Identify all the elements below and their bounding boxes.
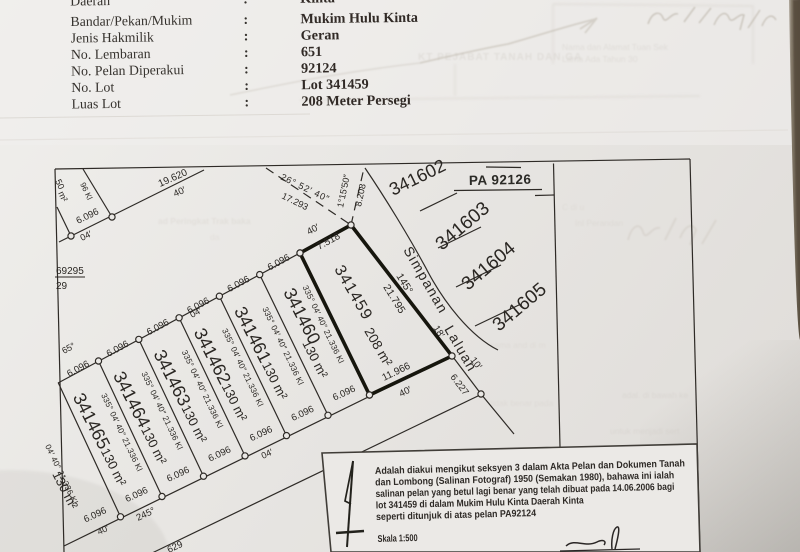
svg-text:Lama Ada Tahun 30: Lama Ada Tahun 30: [562, 54, 638, 64]
svg-text::: :: [243, 13, 248, 28]
svg-text:92124: 92124: [301, 60, 337, 76]
svg-text:da: da: [210, 232, 220, 242]
svg-text:Inl Perandan: Inl Perandan: [575, 218, 623, 228]
svg-text:Daerah: Daerah: [70, 0, 110, 9]
svg-text:untuk menjadi sert: untuk menjadi sert: [610, 426, 680, 436]
svg-text:Mukim Hulu Kinta: Mukim Hulu Kinta: [300, 10, 418, 27]
svg-text:adal. di bawah ke: adal. di bawah ke: [622, 390, 688, 400]
svg-text:Jenis Hakmilik: Jenis Hakmilik: [71, 30, 154, 46]
svg-text:Nama dan Alamat Tuan Sek: Nama dan Alamat Tuan Sek: [562, 42, 669, 52]
svg-text:Skala 1:500: Skala 1:500: [377, 533, 418, 545]
svg-text:No. Pelan Diperakui: No. Pelan Diperakui: [71, 62, 184, 78]
svg-text::: :: [244, 95, 249, 110]
svg-text::: :: [244, 79, 249, 94]
svg-text:PA 92126: PA 92126: [469, 172, 532, 188]
svg-text:69295: 69295: [56, 266, 84, 277]
svg-text:Bandar/Pekan/Mukim: Bandar/Pekan/Mukim: [70, 13, 192, 29]
svg-text:Geran: Geran: [301, 27, 340, 43]
svg-text:Luas Lot: Luas Lot: [71, 96, 121, 112]
svg-text:29: 29: [56, 281, 68, 292]
svg-text::: :: [244, 46, 249, 61]
svg-text::: :: [244, 29, 249, 44]
svg-text:C di u: C di u: [562, 202, 584, 212]
svg-text:sama and di m: sama and di m: [490, 340, 546, 350]
svg-text:651: 651: [301, 44, 322, 60]
svg-text:Kinta: Kinta: [300, 0, 335, 7]
svg-text:Lot 341459: Lot 341459: [301, 76, 369, 93]
svg-text:tidak benar pada: tidak benar pada: [490, 398, 554, 408]
svg-text::: :: [243, 0, 248, 7]
svg-text:ad Peringkat Trak baka: ad Peringkat Trak baka: [158, 216, 251, 226]
svg-text:No. Lot: No. Lot: [71, 79, 114, 95]
svg-text:No. Lembaran: No. Lembaran: [71, 46, 151, 62]
svg-text:208 Meter Persegi: 208 Meter Persegi: [301, 92, 410, 109]
svg-text::: :: [244, 62, 249, 77]
